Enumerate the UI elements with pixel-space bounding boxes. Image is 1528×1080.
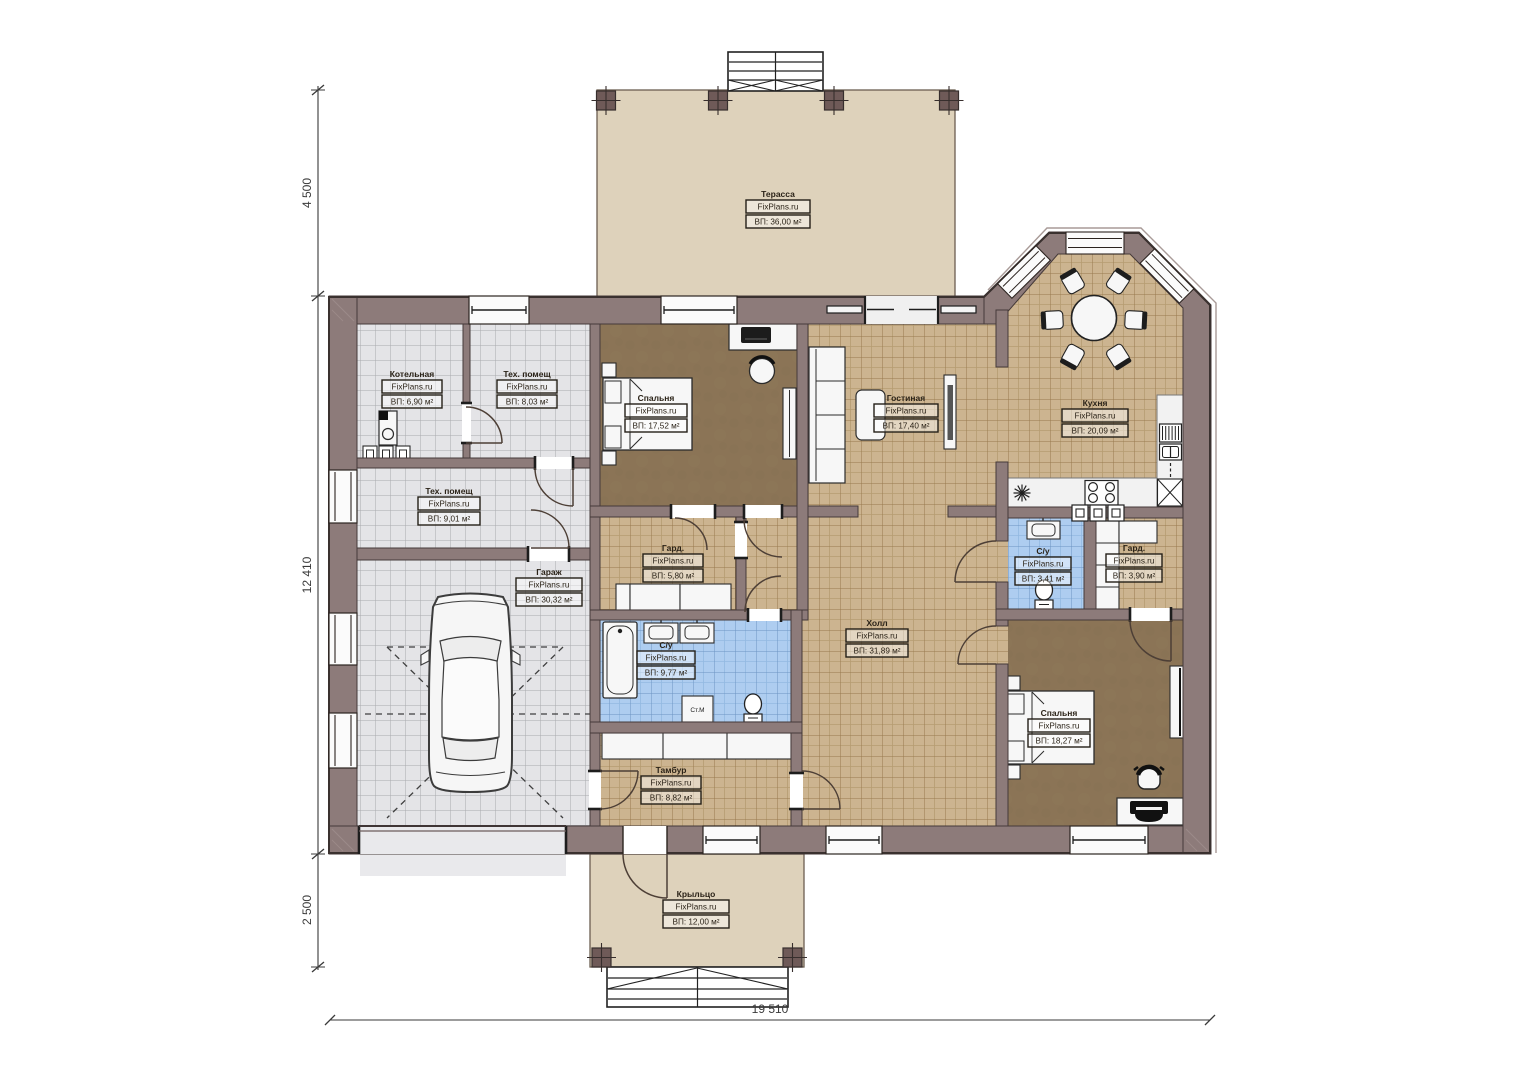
svg-text:ВП: 9,77 м²: ВП: 9,77 м² — [645, 669, 688, 678]
svg-text:FixPlans.ru: FixPlans.ru — [653, 557, 694, 566]
svg-text:С/у: С/у — [659, 640, 673, 650]
svg-text:ВП: 12,00 м²: ВП: 12,00 м² — [672, 918, 719, 927]
svg-text:ВП: 5,80 м²: ВП: 5,80 м² — [652, 572, 695, 581]
svg-text:ВП: 20,09 м²: ВП: 20,09 м² — [1071, 427, 1118, 436]
svg-text:FixPlans.ru: FixPlans.ru — [1039, 722, 1080, 731]
svg-text:Тамбур: Тамбур — [656, 765, 687, 775]
svg-text:ВП: 36,00 м²: ВП: 36,00 м² — [754, 218, 801, 227]
svg-text:Тех. помещ: Тех. помещ — [503, 369, 551, 379]
svg-text:Крыльцо: Крыльцо — [677, 889, 716, 899]
svg-text:Гостиная: Гостиная — [887, 393, 925, 403]
svg-text:FixPlans.ru: FixPlans.ru — [1023, 560, 1064, 569]
svg-text:ВП: 17,40 м²: ВП: 17,40 м² — [882, 422, 929, 431]
svg-text:FixPlans.ru: FixPlans.ru — [857, 632, 898, 641]
svg-text:ВП: 8,82 м²: ВП: 8,82 м² — [650, 794, 693, 803]
svg-text:4 500: 4 500 — [300, 178, 314, 208]
svg-text:Спальня: Спальня — [638, 393, 675, 403]
svg-text:ВП: 3,90 м²: ВП: 3,90 м² — [1113, 572, 1156, 581]
svg-text:Гард.: Гард. — [662, 543, 684, 553]
svg-text:FixPlans.ru: FixPlans.ru — [886, 407, 927, 416]
svg-text:FixPlans.ru: FixPlans.ru — [1075, 412, 1116, 421]
svg-text:FixPlans.ru: FixPlans.ru — [529, 581, 570, 590]
svg-text:Терасса: Терасса — [761, 189, 795, 199]
svg-text:FixPlans.ru: FixPlans.ru — [429, 500, 470, 509]
svg-text:FixPlans.ru: FixPlans.ru — [636, 407, 677, 416]
svg-text:FixPlans.ru: FixPlans.ru — [507, 383, 548, 392]
svg-text:ВП: 9,01 м²: ВП: 9,01 м² — [428, 515, 471, 524]
svg-text:Гараж: Гараж — [536, 567, 562, 577]
svg-text:ВП: 30,32 м²: ВП: 30,32 м² — [525, 596, 572, 605]
svg-text:Спальня: Спальня — [1041, 708, 1078, 718]
svg-text:ВП: 18,27 м²: ВП: 18,27 м² — [1035, 737, 1082, 746]
svg-text:Кухня: Кухня — [1083, 398, 1108, 408]
svg-text:FixPlans.ru: FixPlans.ru — [392, 383, 433, 392]
svg-text:Тех. помещ: Тех. помещ — [425, 486, 473, 496]
svg-text:12 410: 12 410 — [300, 556, 314, 593]
svg-text:ВП: 8,03 м²: ВП: 8,03 м² — [506, 398, 549, 407]
svg-text:ВП: 31,89 м²: ВП: 31,89 м² — [853, 647, 900, 656]
svg-text:FixPlans.ru: FixPlans.ru — [676, 903, 717, 912]
svg-text:ВП: 3,41 м²: ВП: 3,41 м² — [1022, 575, 1065, 584]
svg-text:Ст.М: Ст.М — [690, 707, 704, 714]
svg-text:FixPlans.ru: FixPlans.ru — [646, 654, 687, 663]
svg-text:19 510: 19 510 — [752, 1002, 789, 1016]
svg-text:2 500: 2 500 — [300, 895, 314, 925]
svg-text:С/у: С/у — [1036, 546, 1050, 556]
svg-text:Котельная: Котельная — [390, 369, 435, 379]
svg-text:Гард.: Гард. — [1123, 543, 1145, 553]
svg-text:FixPlans.ru: FixPlans.ru — [651, 779, 692, 788]
svg-text:Холл: Холл — [866, 618, 887, 628]
svg-text:ВП: 17,52 м²: ВП: 17,52 м² — [632, 422, 679, 431]
svg-text:ВП: 6,90 м²: ВП: 6,90 м² — [391, 398, 434, 407]
svg-text:FixPlans.ru: FixPlans.ru — [758, 203, 799, 212]
svg-text:FixPlans.ru: FixPlans.ru — [1114, 557, 1155, 566]
